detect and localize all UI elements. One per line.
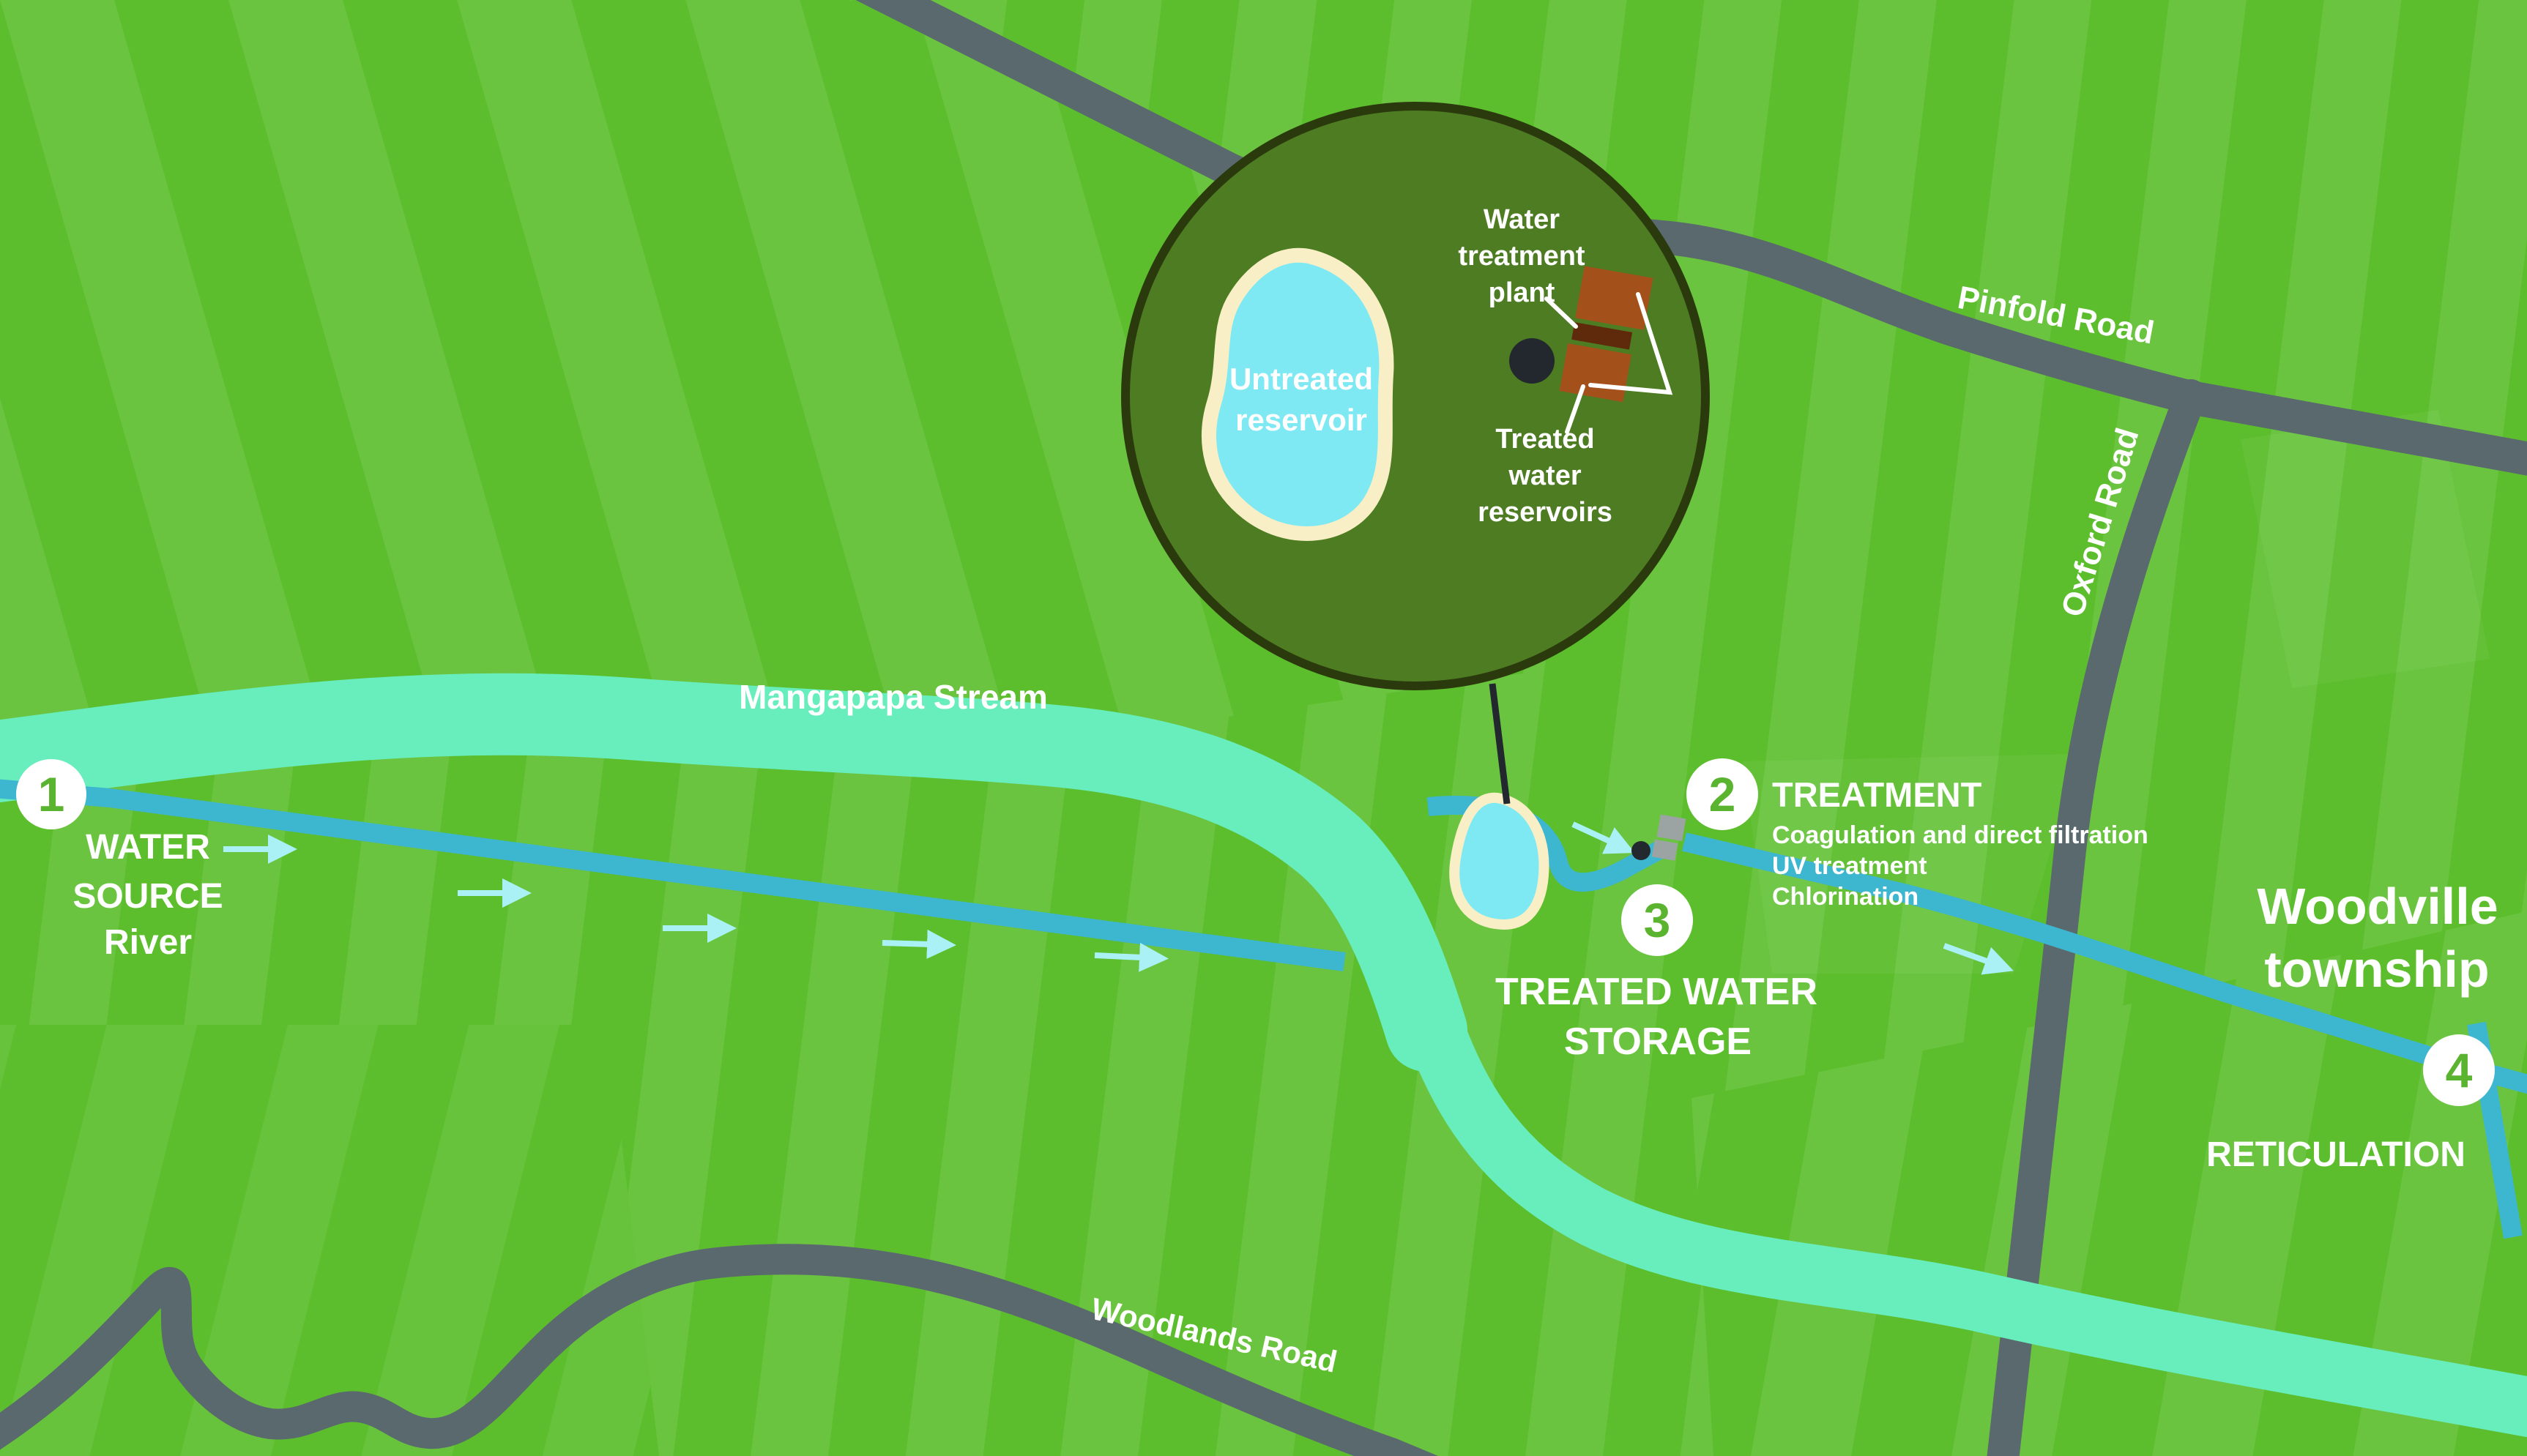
svg-text:Woodville: Woodville (2257, 878, 2498, 935)
treated-water-storage-pond (1454, 798, 1544, 925)
plant-dot-icon (1631, 841, 1650, 860)
svg-text:River: River (104, 923, 192, 962)
treatment-detail: Chlorination (1772, 883, 1918, 911)
svg-text:2: 2 (1709, 767, 1736, 821)
svg-text:3: 3 (1644, 893, 1671, 947)
step-3-label: TREATED WATER (1495, 971, 1817, 1013)
svg-text:township: township (2264, 941, 2489, 998)
step-1-label: WATER (86, 828, 210, 867)
untreated-reservoir-label: Untreated (1229, 362, 1373, 396)
step-2-label: TREATMENT (1772, 775, 1982, 814)
svg-text:reservoirs: reservoirs (1478, 497, 1612, 528)
svg-text:treatment: treatment (1458, 241, 1585, 272)
treated-reservoirs-label: Treated (1495, 424, 1594, 455)
step-4-label: RETICULATION (2206, 1135, 2465, 1174)
stream-label: Mangapapa Stream (739, 678, 1048, 716)
treatment-detail: UV treatment (1772, 852, 1927, 880)
svg-text:1: 1 (38, 767, 65, 821)
inset-plant-dot-icon (1509, 338, 1555, 384)
svg-text:plant: plant (1489, 277, 1555, 308)
flow-direction-arrow (1095, 955, 1142, 957)
svg-text:reservoir: reservoir (1235, 403, 1367, 437)
plant-label: Water (1484, 204, 1560, 235)
treatment-detail: Coagulation and direct filtration (1772, 821, 2148, 849)
svg-text:4: 4 (2446, 1043, 2473, 1097)
svg-text:water: water (1508, 460, 1581, 491)
svg-text:SOURCE: SOURCE (72, 877, 223, 916)
water-supply-map: Untreated reservoir Water treatment plan… (0, 0, 2527, 1456)
inset-magnifier: Untreated reservoir Water treatment plan… (1125, 106, 1705, 686)
plant-building-icon (1657, 814, 1686, 841)
flow-direction-arrow (882, 943, 930, 944)
svg-text:STORAGE: STORAGE (1564, 1020, 1752, 1063)
